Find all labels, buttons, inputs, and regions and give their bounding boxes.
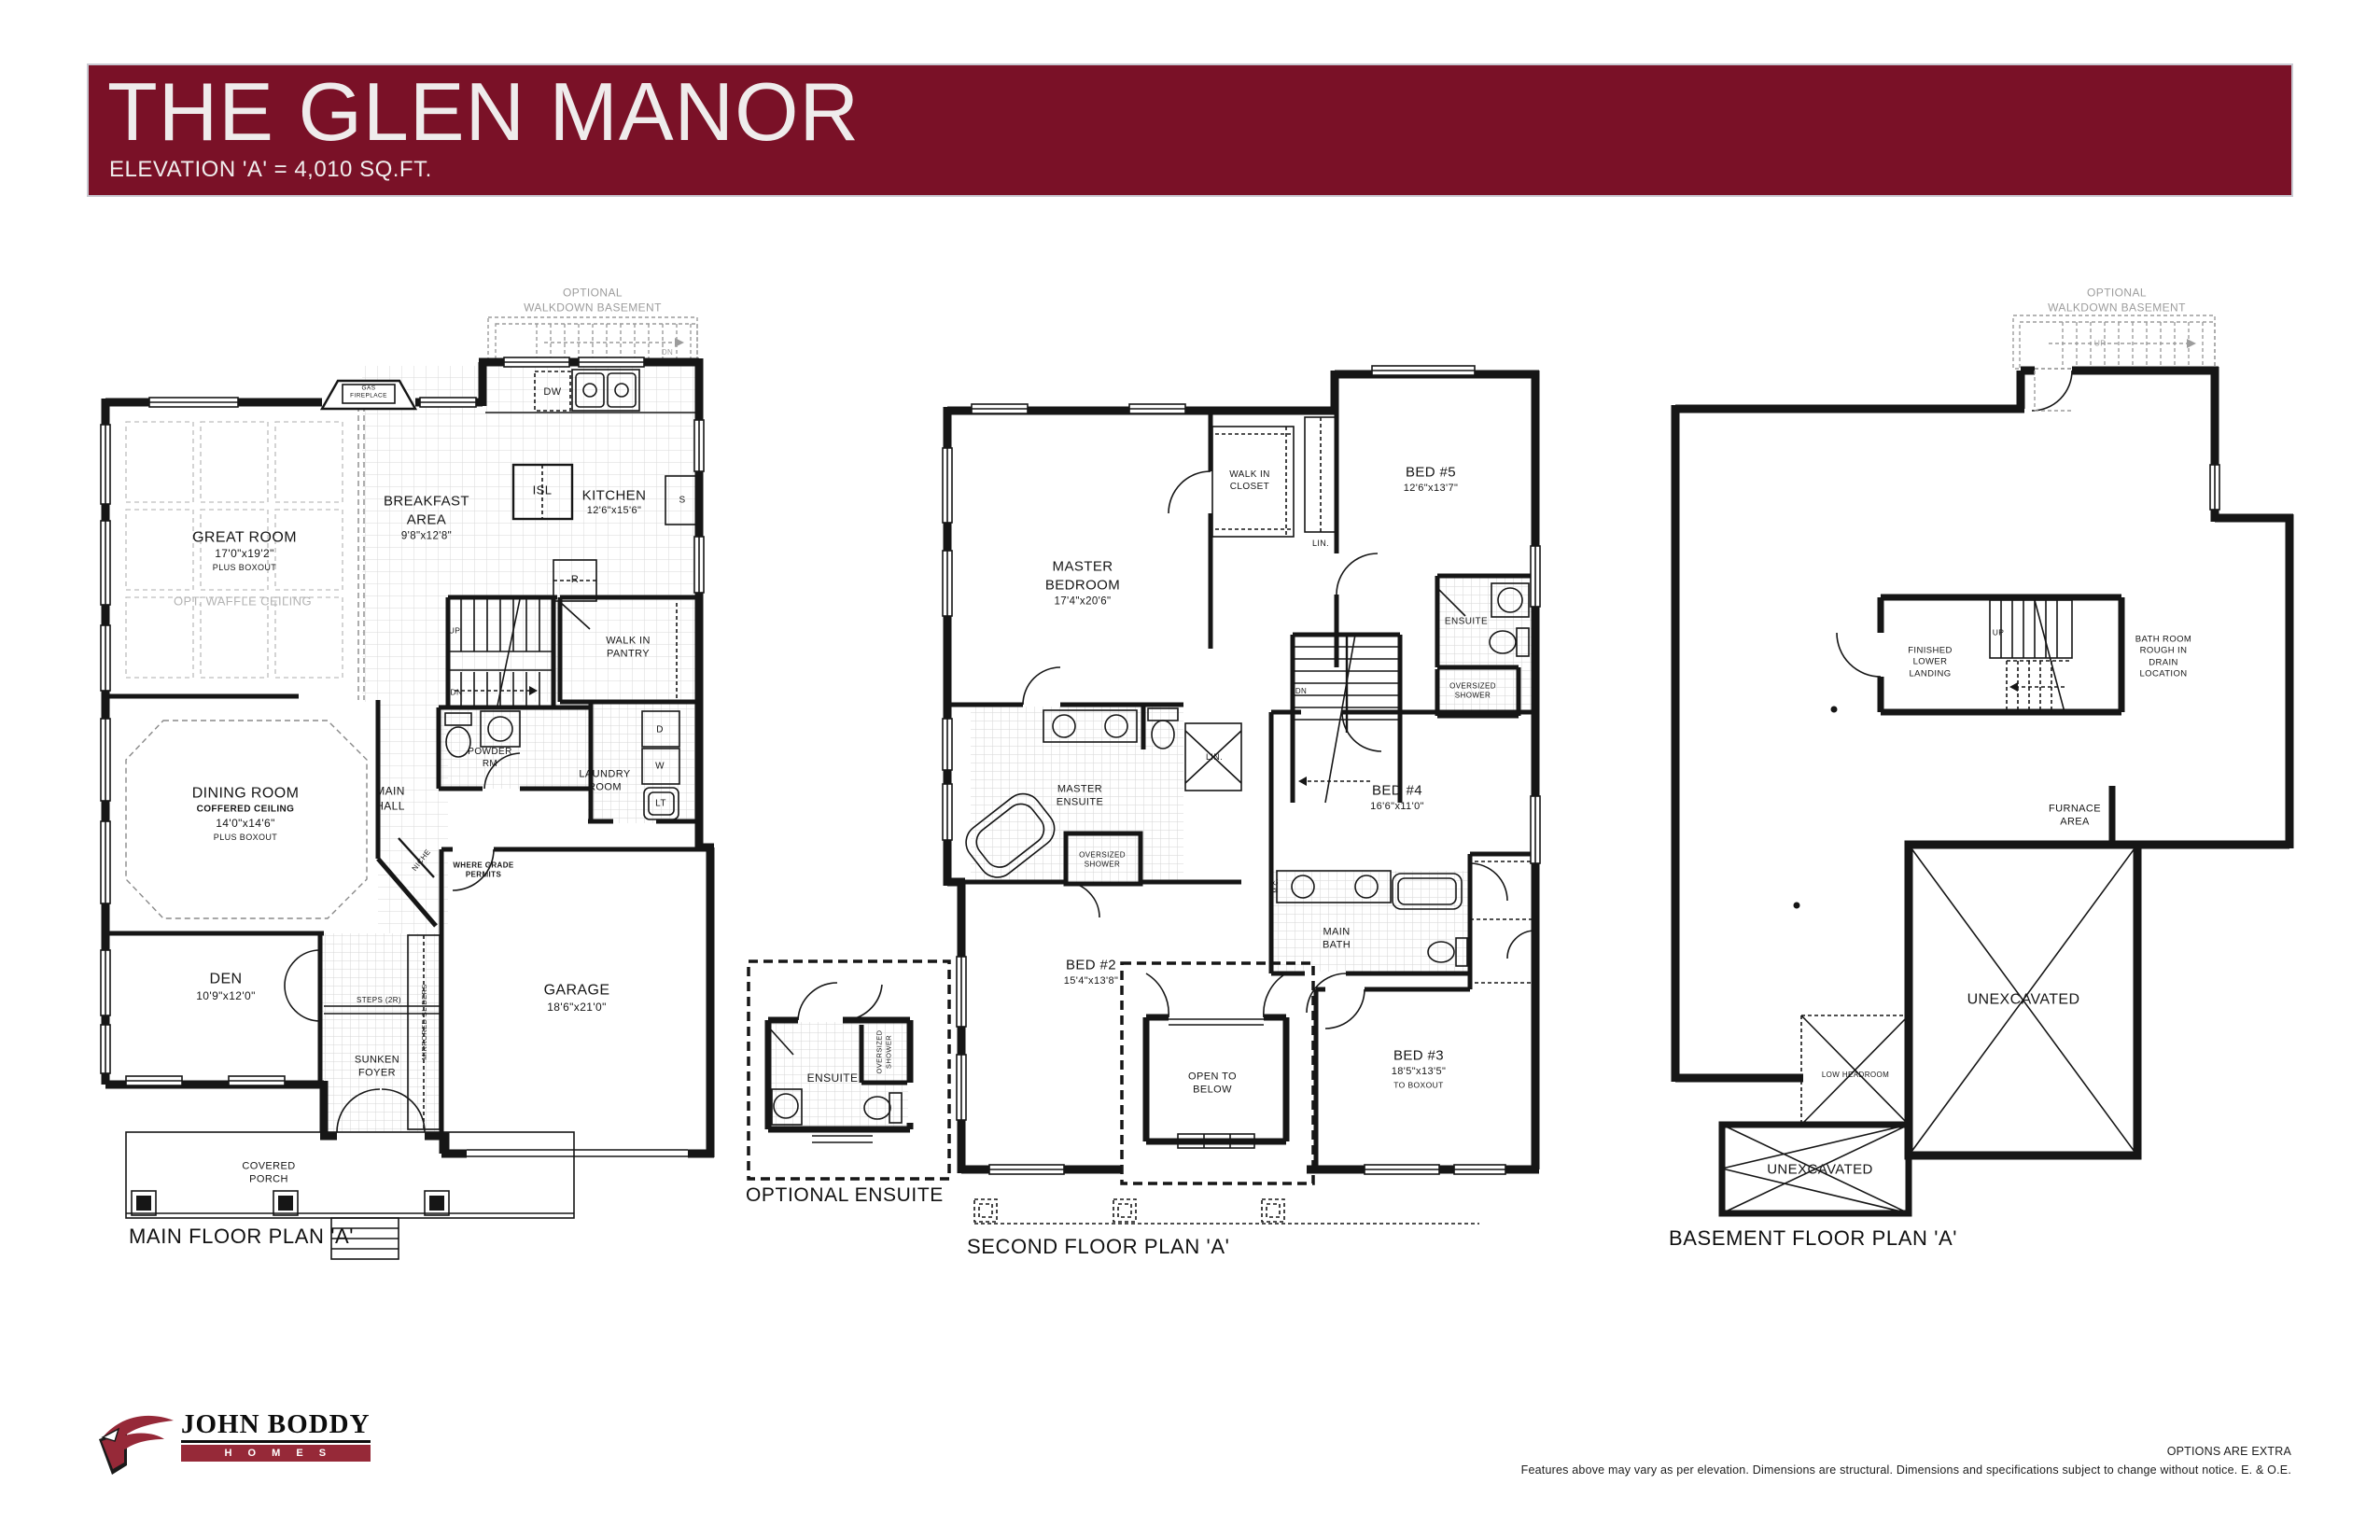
john-boddy-logo: JOHN BODDY H O M E S (93, 1411, 371, 1478)
bed3-note: TO BOXOUT (1393, 1080, 1444, 1090)
dryer-label: D (656, 724, 664, 736)
open-below-label: OPEN TOBELOW (1188, 1071, 1237, 1098)
garage-dims: 18'6"x21'0" (547, 1001, 607, 1015)
master-bedroom-label: MASTERBEDROOM (1045, 558, 1120, 595)
kitchen-label: KITCHEN (582, 486, 647, 505)
walk-in-pantry-label: WALK INPANTRY (606, 635, 651, 662)
island-label: ISL (533, 483, 553, 499)
bed5-shower-label: OVERSIZEDSHOWER (1449, 682, 1496, 702)
where-grade-label: WHERE GRADEPERMITS (453, 861, 513, 881)
second-floor-plan: MASTERBEDROOM17'4"x20'6"WALK INCLOSETBED… (933, 359, 1587, 1269)
dining-room-label: DINING ROOM (192, 785, 300, 805)
second-floor-caption: SECOND FLOOR PLAN 'A' (967, 1235, 1229, 1259)
bed2-dims: 15'4"x13'8" (1064, 974, 1119, 987)
washer-label: W (655, 761, 665, 773)
landing-up-label: UP (1993, 627, 2005, 637)
plan-subtitle: ELEVATION 'A' = 4,010 SQ.FT. (89, 153, 2291, 183)
walkdown-dn-label: DN (662, 348, 673, 357)
stairs-up-label: UP (449, 625, 461, 636)
steps-2r-label: STEPS (2R) (357, 996, 401, 1005)
bed2-label: BED #2 (1066, 956, 1116, 974)
bed4-label: BED #4 (1372, 781, 1422, 800)
master-shower-label: OVERSIZEDSHOWER (1079, 851, 1126, 871)
main-floor-plan: OPTIONALWALKDOWN BASEMENTDNGASFIREPLACEG… (98, 280, 742, 1269)
bed4-dims: 16'6"x11'0" (1370, 800, 1424, 813)
main-floor-caption: MAIN FLOOR PLAN 'A' (129, 1225, 354, 1249)
plan-title: THE GLEN MANOR (89, 65, 2291, 153)
dining-room-dims: 14'0"x14'6" (216, 817, 275, 832)
furnace-area-label: FURNACEAREA (2049, 803, 2101, 830)
disclaimer-note: Features above may vary as per elevation… (1521, 1461, 2291, 1479)
bed3-label: BED #3 (1393, 1046, 1444, 1065)
sunken-foyer-label: SUNKENFOYER (355, 1054, 399, 1081)
optional-walkdown-label: OPTIONALWALKDOWN BASEMENT (524, 286, 662, 315)
optional-ensuite-caption: OPTIONAL ENSUITE (746, 1184, 944, 1207)
bed5-ensuite-label: ENSUITE (1445, 616, 1488, 628)
title-banner: THE GLEN MANOR ELEVATION 'A' = 4,010 SQ.… (87, 63, 2293, 197)
master-bedroom-dims: 17'4"x20'6" (1054, 595, 1111, 609)
kitchen-dims: 12'6"x15'6" (587, 504, 642, 517)
master-ensuite-label: MASTERENSUITE (1057, 783, 1103, 810)
linen-hall-label: LIN. (1206, 752, 1223, 763)
covered-porch-label: COVEREDPORCH (242, 1160, 295, 1187)
powder-room-label: POWDERRM (468, 746, 511, 770)
basement-labels: OPTIONALWALKDOWN BASEMENTUPUPFINISHEDLOW… (1643, 280, 2296, 1269)
basement-caption: BASEMENT FLOOR PLAN 'A' (1669, 1226, 1957, 1251)
bed5-label: BED #5 (1406, 463, 1456, 482)
niche-label: NICHE (411, 847, 434, 874)
disclaimer-notes: OPTIONS ARE EXTRA Features above may var… (1521, 1442, 2291, 1479)
bath-rough-in-label: BATH ROOMROUGH INDRAINLOCATION (2135, 634, 2191, 679)
ensuite-label: ENSUITE (807, 1071, 859, 1086)
optional-walkdown-label: OPTIONALWALKDOWN BASEMENT (2048, 286, 2186, 315)
unexcavated-main-label: UNEXCAVATED (1967, 991, 2080, 1011)
dining-room-ceiling: COFFERED CEILING (197, 804, 295, 816)
sink-cabinet-label: S (679, 495, 685, 507)
garage-label: GARAGE (544, 982, 610, 1001)
den-dims: 10'9"x12'0" (196, 989, 256, 1004)
basement-floor-plan: OPTIONALWALKDOWN BASEMENTUPUPFINISHEDLOW… (1643, 280, 2296, 1269)
mirrored-sliders-label: MIRRORED SLIDERS (420, 984, 429, 1059)
great-room-dims: 17'0"x19'2" (215, 547, 274, 562)
options-extra-note: OPTIONS ARE EXTRA (1521, 1442, 2291, 1461)
breakfast-area-dims: 9'8"x12'8" (401, 530, 452, 544)
bath-mc-label: M.C. (1273, 878, 1281, 892)
low-headroom-label: LOW HEADROOM (1822, 1071, 1889, 1080)
logo-homes-bar: H O M E S (181, 1445, 371, 1462)
main-bath-label: MAINBATH (1323, 926, 1351, 953)
den-label: DEN (210, 971, 243, 990)
dishwasher-label: DW (543, 385, 561, 399)
great-room-label: GREAT ROOM (192, 529, 297, 549)
finished-landing-label: FINISHEDLOWERLANDING (1908, 645, 1953, 679)
range-label: R (571, 573, 579, 586)
laundry-room-label: LAUNDRYROOM (579, 768, 630, 795)
walkdown-up-label: UP (2094, 338, 2107, 348)
floor-plan-sheet: THE GLEN MANOR ELEVATION 'A' = 4,010 SQ.… (0, 0, 2380, 1540)
breakfast-area-label: BREAKFASTAREA (384, 493, 469, 529)
medicine-cabinet-label: M.C. (1141, 718, 1148, 732)
main-floor-labels: OPTIONALWALKDOWN BASEMENTDNGASFIREPLACEG… (98, 280, 742, 1269)
linen-top-label: LIN. (1312, 539, 1329, 550)
stairs-dn-label: DN (1295, 687, 1307, 696)
stairs-dn-label: DN (450, 687, 462, 697)
bed3-dims: 18'5"x13'5" (1392, 1065, 1447, 1078)
walk-in-closet-label: WALK INCLOSET (1229, 469, 1270, 493)
dining-room-note: PLUS BOXOUT (214, 833, 277, 844)
great-room-note: PLUS BOXOUT (213, 563, 276, 574)
unexcavated-lower-label: UNEXCAVATED (1767, 1160, 1873, 1179)
waffle-ceiling-label: OPT. WAFFLE CEILING (174, 595, 312, 610)
oversized-shower-label: OVERSIZEDSHOWER (875, 1030, 893, 1074)
john-boddy-logo-icon (93, 1411, 175, 1478)
main-hall-label: MAINHALL (375, 784, 405, 813)
bed5-dims: 12'6"x13'7" (1404, 482, 1459, 495)
second-floor-labels: MASTERBEDROOM17'4"x20'6"WALK INCLOSETBED… (933, 359, 1587, 1269)
gas-fireplace-label: GASFIREPLACE (350, 385, 387, 401)
laundry-tub-label: LT (655, 798, 666, 810)
logo-name: JOHN BODDY (181, 1411, 371, 1443)
